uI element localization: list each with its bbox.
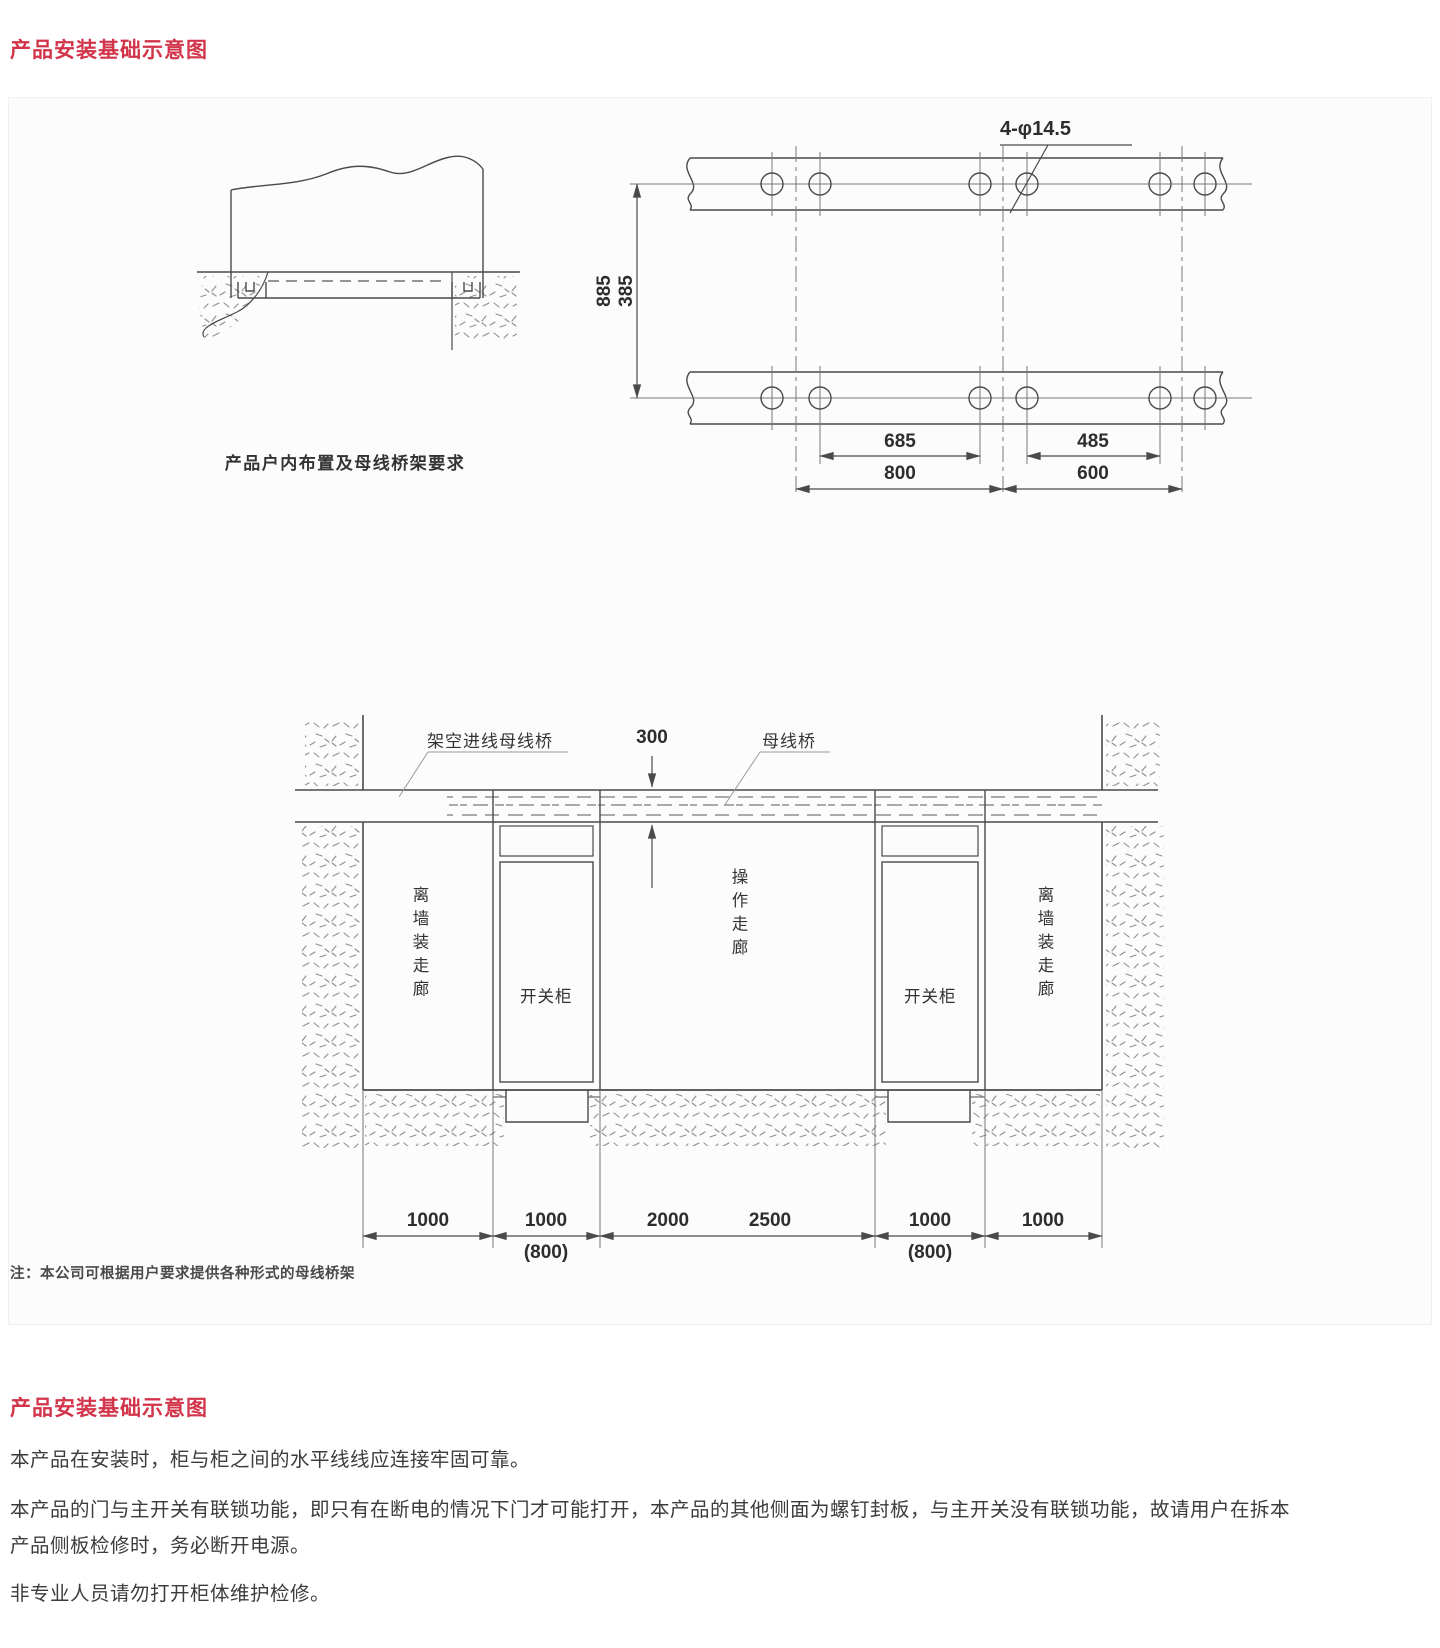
dim-800: 800 <box>877 463 923 485</box>
dim-span-3b: 2500 <box>745 1210 795 1232</box>
figure-note: 注：本公司可根据用户要求提供各种形式的母线桥架 <box>10 1262 355 1283</box>
linework-svg <box>0 0 1440 1648</box>
indoor-layout-caption: 产品户内布置及母线桥架要求 <box>213 449 477 474</box>
dim-span-5: 1000 <box>1018 1210 1068 1232</box>
wall-corridor-right-label: 离墙装走廊 <box>1032 886 1056 1004</box>
bus-bridge-label: 母线桥 <box>762 727 816 752</box>
section-title: 产品安装基础示意图 <box>10 1392 208 1422</box>
page: { "colors": { "accent_red": "#d2344a", "… <box>0 0 1440 1648</box>
dim-span-4: 1000 <box>905 1210 955 1232</box>
dim-span-2: 1000 <box>521 1210 571 1232</box>
hole-spec-label: 4-φ14.5 <box>1000 118 1071 141</box>
paragraph-1: 本产品在安装时，柜与柜之间的水平线线应连接牢固可靠。 <box>10 1442 1430 1478</box>
dim-885: 885 <box>594 269 614 313</box>
wall-corridor-left-label: 离墙装走廊 <box>407 886 431 1004</box>
dim-385: 385 <box>616 269 636 313</box>
clearance-300-label: 300 <box>630 727 674 749</box>
paragraph-2: 本产品的门与主开关有联锁功能，即只有在断电的情况下门才可能打开，本产品的其他侧面… <box>10 1492 1302 1564</box>
dim-485: 485 <box>1070 431 1116 453</box>
cabinet-right-label: 开关柜 <box>904 983 957 1007</box>
dim-span-4-alt: (800) <box>905 1242 955 1264</box>
overhead-bus-label: 架空进线母线桥 <box>427 727 553 752</box>
paragraph-3: 非专业人员请勿打开柜体维护检修。 <box>10 1576 1430 1612</box>
dim-span-1: 1000 <box>403 1210 453 1232</box>
cabinet-left-label: 开关柜 <box>520 983 573 1007</box>
diagram-indoor-layout <box>197 156 520 350</box>
dim-600: 600 <box>1070 463 1116 485</box>
dim-span-2-alt: (800) <box>521 1242 571 1264</box>
diagram-channel-plan <box>630 145 1252 497</box>
dim-685: 685 <box>877 431 923 453</box>
operation-corridor-label: 操作走廊 <box>726 868 750 962</box>
dim-span-3a: 2000 <box>643 1210 693 1232</box>
